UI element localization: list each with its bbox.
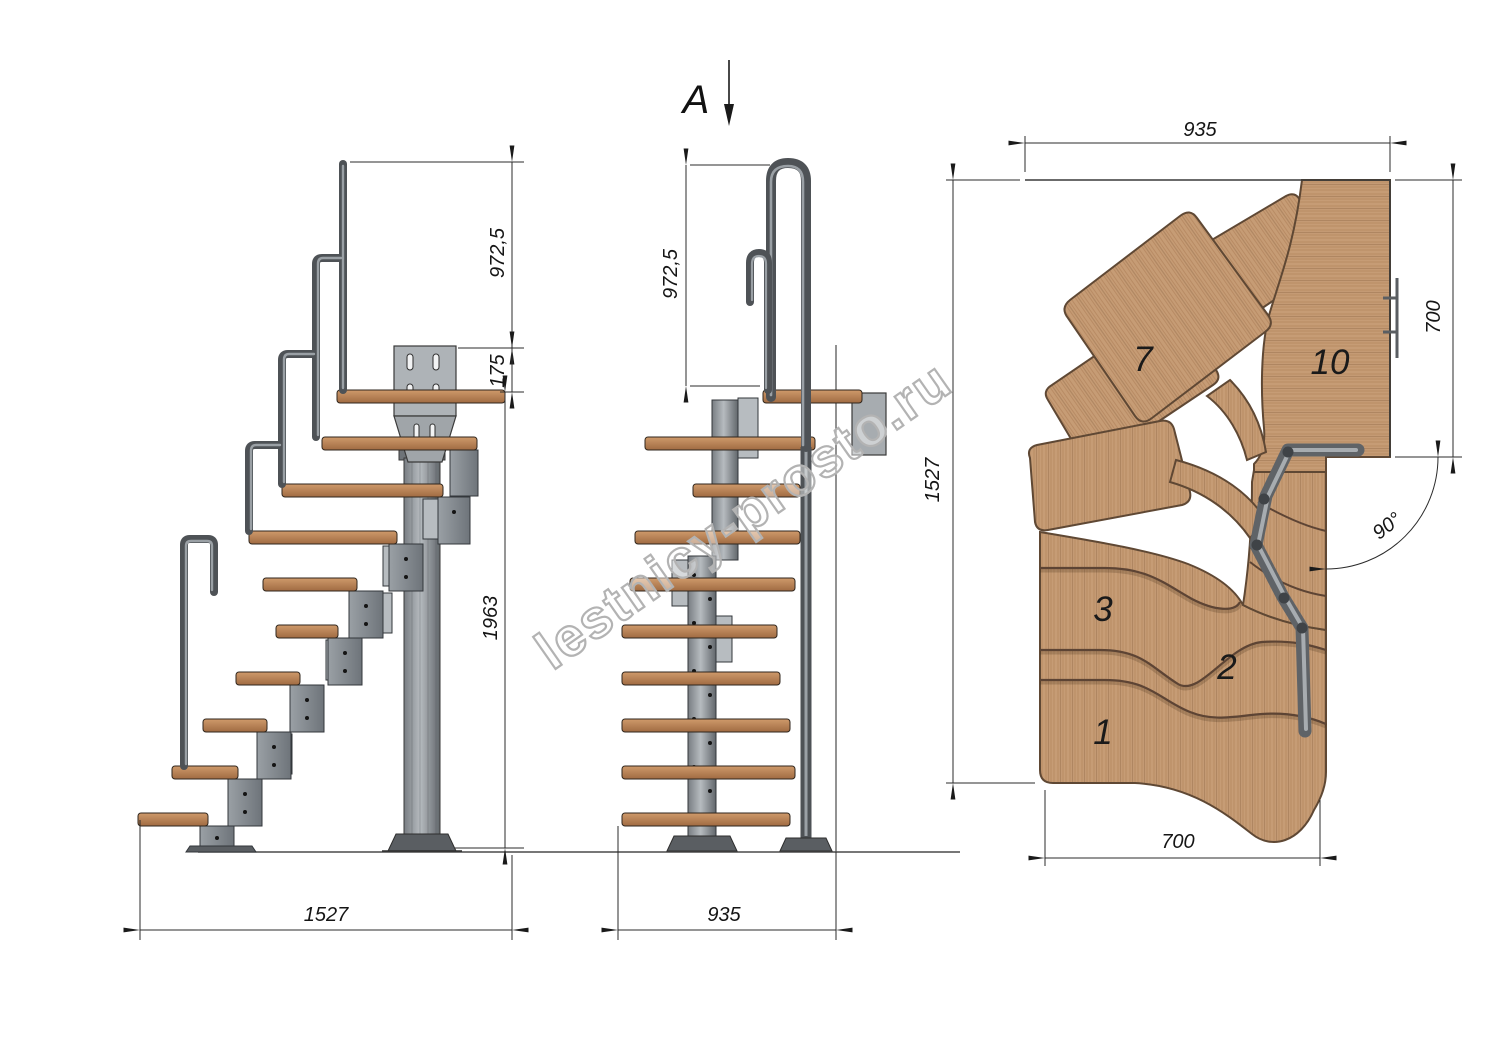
plan-view: 3 2 1 7 10 935 1527 700 700 90° xyxy=(922,119,1462,866)
plan-step-5 xyxy=(1029,421,1190,531)
side-dim-rail-height: 972,5 xyxy=(487,227,509,278)
plan-step3-label: 3 xyxy=(1093,590,1113,629)
section-label: A xyxy=(681,78,710,122)
front-spine-column xyxy=(667,556,737,851)
side-dim-length: 1527 xyxy=(304,904,349,926)
section-arrow-head xyxy=(724,104,734,126)
plan-step1-label: 1 xyxy=(1093,713,1112,752)
staircase-technical-drawing: 972,5 175 1963 1527 A xyxy=(0,0,1500,1061)
side-dim-platform-offset: 175 xyxy=(487,353,509,387)
section-arrow: A xyxy=(681,60,734,126)
plan-step-7-neck xyxy=(1207,380,1266,460)
plan-step10-label: 10 xyxy=(1311,343,1350,382)
plan-dim-depth-right: 700 xyxy=(1423,300,1445,333)
plan-step7-label: 7 xyxy=(1133,340,1154,379)
side-elevation-view: 972,5 175 1963 1527 xyxy=(138,162,524,940)
plan-dim-turn-angle: 90° xyxy=(1369,508,1406,544)
drawing-sheet: 972,5 175 1963 1527 A xyxy=(0,0,1500,1061)
plan-turn-angle-arc xyxy=(1326,457,1438,569)
front-dim-width: 935 xyxy=(707,904,741,926)
plan-step2-label: 2 xyxy=(1216,648,1236,687)
front-dim-rail-height: 972,5 xyxy=(660,248,682,299)
plan-dim-width-bottom: 700 xyxy=(1161,831,1194,853)
side-dim-column-height: 1963 xyxy=(480,596,502,641)
plan-dim-width-top: 935 xyxy=(1183,119,1217,141)
plan-dim-length-left: 1527 xyxy=(922,457,944,502)
